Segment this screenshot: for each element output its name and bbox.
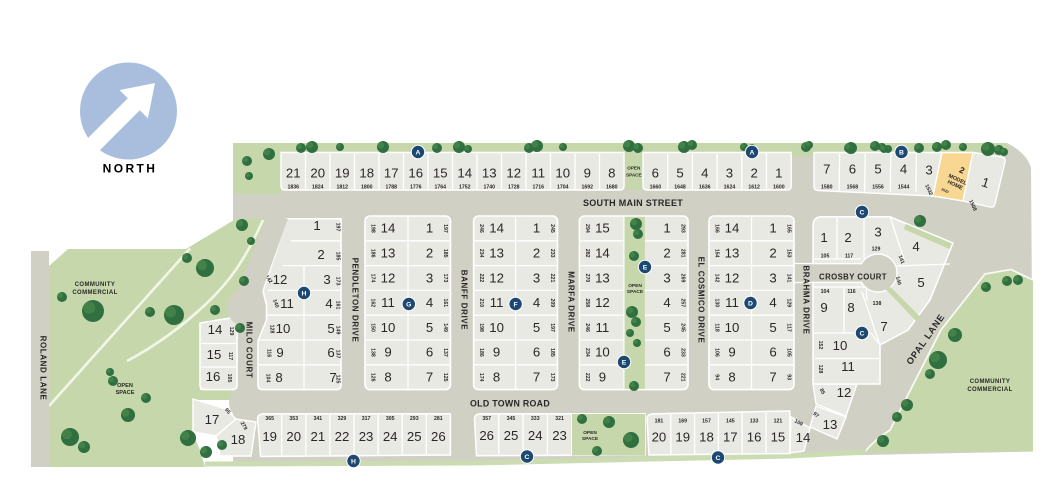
svg-text:154: 154 bbox=[714, 249, 720, 258]
svg-text:6: 6 bbox=[533, 345, 540, 360]
svg-text:C: C bbox=[860, 330, 865, 337]
svg-text:13: 13 bbox=[823, 417, 838, 432]
svg-text:245: 245 bbox=[549, 224, 555, 233]
svg-text:130: 130 bbox=[714, 298, 720, 307]
svg-text:7: 7 bbox=[823, 162, 830, 177]
svg-text:OPEN: OPEN bbox=[628, 283, 642, 289]
svg-text:E: E bbox=[622, 359, 627, 366]
svg-text:6: 6 bbox=[663, 345, 670, 360]
svg-text:18: 18 bbox=[359, 166, 374, 181]
svg-text:2: 2 bbox=[426, 246, 433, 261]
svg-text:11: 11 bbox=[280, 296, 294, 311]
svg-text:C: C bbox=[525, 454, 530, 461]
svg-text:353: 353 bbox=[289, 416, 298, 422]
svg-text:1612: 1612 bbox=[748, 185, 760, 191]
svg-text:9: 9 bbox=[599, 370, 606, 385]
svg-text:26: 26 bbox=[479, 428, 494, 443]
svg-text:1: 1 bbox=[663, 221, 670, 236]
svg-text:166: 166 bbox=[714, 224, 720, 233]
svg-text:7: 7 bbox=[533, 370, 540, 385]
svg-text:222: 222 bbox=[478, 274, 484, 283]
svg-text:2: 2 bbox=[750, 166, 757, 181]
svg-text:210: 210 bbox=[478, 298, 484, 307]
svg-text:9: 9 bbox=[276, 345, 283, 360]
svg-text:10: 10 bbox=[833, 338, 848, 353]
svg-text:157: 157 bbox=[702, 419, 711, 425]
svg-text:8: 8 bbox=[493, 370, 500, 385]
svg-text:20: 20 bbox=[310, 166, 325, 181]
svg-text:1: 1 bbox=[820, 230, 827, 245]
svg-text:234: 234 bbox=[584, 348, 590, 357]
svg-text:21: 21 bbox=[286, 166, 301, 181]
svg-text:14: 14 bbox=[595, 246, 610, 261]
svg-text:9: 9 bbox=[728, 345, 735, 360]
svg-text:SPACE: SPACE bbox=[582, 436, 599, 442]
svg-text:162: 162 bbox=[370, 298, 376, 307]
svg-text:4: 4 bbox=[900, 162, 907, 177]
svg-text:165: 165 bbox=[786, 224, 792, 233]
svg-text:7: 7 bbox=[880, 319, 887, 334]
svg-text:BANFF DRIVE: BANFF DRIVE bbox=[460, 270, 469, 330]
svg-text:222: 222 bbox=[584, 373, 590, 382]
svg-text:198: 198 bbox=[370, 224, 376, 233]
svg-text:9: 9 bbox=[820, 300, 827, 315]
svg-text:258: 258 bbox=[584, 298, 590, 307]
svg-text:153: 153 bbox=[786, 249, 792, 258]
svg-text:6: 6 bbox=[849, 162, 856, 177]
svg-text:149: 149 bbox=[335, 326, 341, 335]
svg-text:12: 12 bbox=[489, 270, 504, 285]
svg-text:281: 281 bbox=[680, 249, 686, 258]
svg-text:125: 125 bbox=[335, 375, 341, 384]
svg-text:8: 8 bbox=[728, 370, 735, 385]
svg-text:9: 9 bbox=[584, 166, 591, 181]
svg-text:EL COSMICO DRIVE: EL COSMICO DRIVE bbox=[697, 257, 706, 344]
svg-text:329: 329 bbox=[338, 416, 347, 422]
svg-text:341: 341 bbox=[314, 416, 323, 422]
svg-text:24: 24 bbox=[383, 429, 398, 444]
svg-text:185: 185 bbox=[549, 348, 555, 357]
svg-text:173: 173 bbox=[549, 373, 555, 382]
svg-text:185: 185 bbox=[442, 249, 448, 258]
svg-text:117: 117 bbox=[227, 352, 233, 360]
svg-text:SPACE: SPACE bbox=[116, 390, 135, 396]
svg-text:17: 17 bbox=[384, 166, 399, 181]
svg-text:17: 17 bbox=[205, 412, 220, 427]
svg-text:15: 15 bbox=[207, 347, 222, 362]
svg-text:14: 14 bbox=[381, 221, 396, 236]
svg-text:161: 161 bbox=[442, 298, 448, 307]
svg-text:1556: 1556 bbox=[872, 185, 884, 191]
svg-text:10: 10 bbox=[381, 320, 396, 335]
svg-text:14: 14 bbox=[796, 430, 811, 445]
svg-text:1: 1 bbox=[426, 221, 433, 236]
svg-text:1836: 1836 bbox=[287, 185, 299, 191]
svg-text:OLD TOWN ROAD: OLD TOWN ROAD bbox=[470, 399, 550, 409]
svg-text:105: 105 bbox=[821, 254, 830, 260]
svg-text:141: 141 bbox=[786, 274, 792, 283]
svg-text:270: 270 bbox=[584, 274, 590, 283]
svg-text:17: 17 bbox=[723, 430, 738, 445]
svg-text:26: 26 bbox=[431, 429, 446, 444]
svg-text:14: 14 bbox=[457, 166, 472, 181]
svg-text:1568: 1568 bbox=[847, 185, 859, 191]
svg-text:7: 7 bbox=[769, 370, 776, 385]
svg-text:246: 246 bbox=[478, 224, 484, 233]
svg-text:1624: 1624 bbox=[724, 185, 736, 191]
svg-text:12: 12 bbox=[595, 295, 610, 310]
svg-text:SPACE: SPACE bbox=[627, 289, 644, 295]
svg-text:129: 129 bbox=[228, 327, 234, 336]
svg-text:145: 145 bbox=[726, 419, 735, 425]
svg-text:128: 128 bbox=[269, 325, 275, 334]
svg-text:21: 21 bbox=[311, 429, 326, 444]
svg-text:24: 24 bbox=[528, 428, 543, 443]
svg-text:14: 14 bbox=[725, 221, 740, 236]
svg-text:SOUTH MAIN STREET: SOUTH MAIN STREET bbox=[583, 198, 683, 208]
svg-text:4: 4 bbox=[663, 295, 670, 310]
svg-text:COMMUNITY: COMMUNITY bbox=[970, 379, 1011, 385]
svg-text:345: 345 bbox=[507, 416, 516, 422]
svg-text:3: 3 bbox=[726, 166, 733, 181]
svg-text:197: 197 bbox=[549, 323, 555, 332]
svg-text:5: 5 bbox=[874, 162, 881, 177]
svg-text:E: E bbox=[643, 264, 648, 271]
svg-text:12: 12 bbox=[837, 385, 852, 400]
svg-text:CROSBY COURT: CROSBY COURT bbox=[819, 273, 887, 282]
svg-text:13: 13 bbox=[381, 246, 396, 261]
svg-text:2: 2 bbox=[533, 246, 540, 261]
svg-text:321: 321 bbox=[555, 416, 564, 422]
svg-text:234: 234 bbox=[478, 249, 484, 258]
svg-text:2: 2 bbox=[769, 246, 776, 261]
svg-text:4: 4 bbox=[769, 295, 776, 310]
svg-text:138: 138 bbox=[370, 348, 376, 357]
svg-text:1728: 1728 bbox=[508, 185, 520, 191]
svg-text:12: 12 bbox=[506, 166, 521, 181]
svg-text:18: 18 bbox=[231, 432, 246, 447]
svg-text:13: 13 bbox=[482, 166, 497, 181]
svg-text:12: 12 bbox=[725, 270, 740, 285]
svg-text:1704: 1704 bbox=[557, 185, 569, 191]
svg-text:H: H bbox=[302, 290, 307, 297]
svg-text:5: 5 bbox=[533, 320, 540, 335]
svg-text:16: 16 bbox=[747, 430, 762, 445]
svg-text:173: 173 bbox=[335, 277, 341, 286]
svg-text:A: A bbox=[416, 149, 421, 156]
svg-text:5: 5 bbox=[327, 321, 334, 336]
svg-text:129: 129 bbox=[786, 298, 792, 307]
svg-text:197: 197 bbox=[442, 224, 448, 233]
svg-text:11: 11 bbox=[841, 359, 855, 374]
svg-text:14: 14 bbox=[208, 322, 223, 337]
svg-text:G: G bbox=[406, 301, 411, 308]
svg-text:117: 117 bbox=[786, 323, 792, 331]
svg-text:11: 11 bbox=[531, 166, 545, 181]
svg-text:6: 6 bbox=[652, 166, 659, 181]
svg-text:19: 19 bbox=[675, 430, 690, 445]
svg-text:2: 2 bbox=[317, 247, 324, 262]
svg-text:293: 293 bbox=[680, 224, 686, 233]
svg-text:150: 150 bbox=[370, 323, 376, 332]
svg-text:COMMUNITY: COMMUNITY bbox=[75, 282, 116, 288]
svg-text:105: 105 bbox=[786, 348, 792, 357]
svg-text:152: 152 bbox=[817, 341, 823, 350]
svg-text:BRAHMA DRIVE: BRAHMA DRIVE bbox=[802, 265, 811, 334]
svg-text:4: 4 bbox=[701, 166, 708, 181]
svg-text:116: 116 bbox=[847, 289, 855, 295]
svg-text:MILO COURT: MILO COURT bbox=[245, 322, 254, 379]
svg-text:11: 11 bbox=[596, 320, 610, 335]
svg-text:12: 12 bbox=[273, 272, 288, 287]
svg-text:1800: 1800 bbox=[361, 185, 373, 191]
svg-text:4: 4 bbox=[325, 296, 332, 311]
svg-text:2: 2 bbox=[663, 246, 670, 261]
svg-text:B: B bbox=[899, 149, 904, 156]
svg-text:19: 19 bbox=[262, 429, 277, 444]
svg-text:5: 5 bbox=[769, 320, 776, 335]
svg-text:8: 8 bbox=[847, 300, 854, 315]
svg-text:5: 5 bbox=[426, 320, 433, 335]
svg-text:125: 125 bbox=[442, 373, 448, 382]
svg-text:118: 118 bbox=[714, 323, 720, 331]
svg-text:20: 20 bbox=[286, 429, 301, 444]
svg-text:3: 3 bbox=[769, 270, 776, 285]
svg-text:245: 245 bbox=[680, 323, 686, 332]
svg-text:333: 333 bbox=[531, 416, 540, 422]
svg-text:ROLAND LANE: ROLAND LANE bbox=[39, 336, 48, 401]
svg-text:106: 106 bbox=[714, 348, 720, 357]
svg-text:F: F bbox=[514, 301, 518, 308]
svg-text:8: 8 bbox=[608, 166, 615, 181]
svg-text:1660: 1660 bbox=[650, 185, 662, 191]
svg-text:105: 105 bbox=[226, 374, 232, 383]
svg-text:129: 129 bbox=[872, 247, 881, 253]
svg-text:H: H bbox=[351, 458, 356, 465]
svg-text:294: 294 bbox=[584, 224, 590, 233]
svg-text:1: 1 bbox=[313, 218, 320, 233]
svg-text:C: C bbox=[860, 209, 865, 216]
svg-text:198: 198 bbox=[478, 323, 484, 332]
svg-text:16: 16 bbox=[206, 369, 221, 384]
svg-text:1: 1 bbox=[533, 221, 540, 236]
svg-text:11: 11 bbox=[381, 295, 395, 310]
svg-text:269: 269 bbox=[680, 274, 686, 283]
svg-text:20: 20 bbox=[652, 430, 667, 445]
svg-text:209: 209 bbox=[549, 298, 555, 307]
svg-text:15: 15 bbox=[433, 166, 448, 181]
svg-text:3: 3 bbox=[925, 163, 932, 178]
svg-text:23: 23 bbox=[552, 428, 567, 443]
svg-text:8: 8 bbox=[275, 370, 282, 385]
svg-text:186: 186 bbox=[478, 348, 484, 357]
svg-text:104: 104 bbox=[265, 374, 271, 383]
svg-text:305: 305 bbox=[386, 416, 395, 422]
svg-text:6: 6 bbox=[426, 345, 433, 360]
svg-text:93: 93 bbox=[786, 374, 792, 380]
svg-text:10: 10 bbox=[489, 320, 504, 335]
svg-text:1692: 1692 bbox=[581, 185, 593, 191]
svg-text:104: 104 bbox=[821, 289, 830, 295]
svg-text:OPEN: OPEN bbox=[583, 430, 597, 436]
svg-text:128: 128 bbox=[817, 365, 823, 374]
svg-text:1544: 1544 bbox=[898, 185, 910, 191]
svg-text:9: 9 bbox=[384, 345, 391, 360]
svg-text:OPEN: OPEN bbox=[117, 383, 133, 389]
svg-text:COMMERCIAL: COMMERCIAL bbox=[72, 290, 117, 296]
svg-text:10: 10 bbox=[595, 345, 610, 360]
svg-text:8: 8 bbox=[384, 370, 391, 385]
svg-text:12: 12 bbox=[381, 270, 396, 285]
svg-text:23: 23 bbox=[359, 429, 374, 444]
svg-text:233: 233 bbox=[680, 348, 686, 357]
svg-text:11: 11 bbox=[490, 295, 504, 310]
svg-text:22: 22 bbox=[335, 429, 350, 444]
svg-text:4: 4 bbox=[912, 239, 919, 254]
svg-text:6: 6 bbox=[327, 345, 334, 360]
svg-text:OPEN: OPEN bbox=[627, 166, 641, 171]
svg-text:3: 3 bbox=[533, 270, 540, 285]
svg-text:PENDLETON DRIVE: PENDLETON DRIVE bbox=[351, 258, 360, 343]
svg-text:181: 181 bbox=[655, 419, 664, 425]
svg-text:3: 3 bbox=[874, 225, 881, 240]
svg-text:4: 4 bbox=[426, 295, 433, 310]
svg-text:1824: 1824 bbox=[312, 185, 324, 191]
svg-text:116: 116 bbox=[266, 349, 272, 357]
svg-text:138: 138 bbox=[873, 301, 882, 307]
svg-text:25: 25 bbox=[407, 429, 422, 444]
svg-text:1: 1 bbox=[769, 221, 776, 236]
svg-text:14: 14 bbox=[489, 221, 504, 236]
svg-text:174: 174 bbox=[478, 373, 484, 382]
svg-text:COMMERCIAL: COMMERCIAL bbox=[967, 387, 1012, 393]
svg-text:257: 257 bbox=[680, 298, 686, 307]
svg-text:5: 5 bbox=[676, 166, 683, 181]
svg-text:365: 365 bbox=[265, 416, 274, 422]
svg-text:293: 293 bbox=[410, 416, 419, 422]
svg-text:1764: 1764 bbox=[434, 185, 446, 191]
svg-text:19: 19 bbox=[335, 166, 350, 181]
svg-text:7: 7 bbox=[663, 370, 670, 385]
svg-text:317: 317 bbox=[362, 416, 371, 422]
svg-text:1752: 1752 bbox=[459, 185, 471, 191]
svg-text:1716: 1716 bbox=[532, 185, 544, 191]
svg-text:13: 13 bbox=[725, 246, 740, 261]
svg-text:149: 149 bbox=[442, 323, 448, 332]
svg-text:94: 94 bbox=[714, 374, 720, 380]
svg-text:16: 16 bbox=[408, 166, 423, 181]
svg-text:MARFA DRIVE: MARFA DRIVE bbox=[567, 271, 576, 332]
svg-text:169: 169 bbox=[678, 419, 687, 425]
svg-text:282: 282 bbox=[584, 249, 590, 258]
svg-text:1740: 1740 bbox=[483, 185, 495, 191]
svg-text:5: 5 bbox=[663, 320, 670, 335]
svg-text:126: 126 bbox=[370, 373, 376, 382]
svg-text:A: A bbox=[750, 149, 755, 156]
svg-text:9: 9 bbox=[493, 345, 500, 360]
svg-text:11: 11 bbox=[725, 295, 739, 310]
svg-text:142: 142 bbox=[714, 274, 720, 283]
svg-text:10: 10 bbox=[725, 320, 740, 335]
svg-text:NORTH: NORTH bbox=[103, 162, 158, 176]
svg-text:3: 3 bbox=[323, 272, 330, 287]
svg-text:357: 357 bbox=[482, 416, 491, 422]
svg-text:121: 121 bbox=[774, 419, 783, 425]
svg-text:15: 15 bbox=[771, 430, 786, 445]
svg-text:10: 10 bbox=[555, 166, 570, 181]
svg-text:18: 18 bbox=[699, 430, 714, 445]
svg-text:137: 137 bbox=[335, 350, 341, 359]
svg-text:221: 221 bbox=[549, 274, 555, 283]
svg-text:1680: 1680 bbox=[606, 185, 618, 191]
svg-text:1648: 1648 bbox=[674, 185, 686, 191]
svg-text:174: 174 bbox=[370, 274, 376, 283]
svg-text:1: 1 bbox=[775, 166, 782, 181]
svg-text:1636: 1636 bbox=[699, 185, 711, 191]
svg-text:246: 246 bbox=[584, 323, 590, 332]
svg-text:173: 173 bbox=[442, 274, 448, 283]
svg-text:1600: 1600 bbox=[773, 185, 785, 191]
svg-text:7: 7 bbox=[426, 370, 433, 385]
svg-text:13: 13 bbox=[489, 246, 504, 261]
svg-text:6: 6 bbox=[769, 345, 776, 360]
svg-text:5: 5 bbox=[917, 275, 924, 290]
svg-text:137: 137 bbox=[442, 348, 448, 357]
svg-text:161: 161 bbox=[335, 301, 341, 310]
svg-text:C: C bbox=[716, 455, 721, 462]
svg-text:221: 221 bbox=[680, 373, 686, 382]
svg-text:1788: 1788 bbox=[385, 185, 397, 191]
svg-text:281: 281 bbox=[434, 416, 443, 422]
svg-text:10: 10 bbox=[276, 321, 291, 336]
svg-text:13: 13 bbox=[595, 270, 610, 285]
svg-text:197: 197 bbox=[335, 223, 341, 232]
svg-text:133: 133 bbox=[750, 419, 759, 425]
svg-text:3: 3 bbox=[426, 270, 433, 285]
svg-text:117: 117 bbox=[845, 254, 853, 260]
svg-text:D: D bbox=[748, 300, 753, 307]
svg-text:4: 4 bbox=[533, 295, 540, 310]
svg-text:1580: 1580 bbox=[821, 185, 833, 191]
svg-text:185: 185 bbox=[335, 252, 341, 261]
svg-text:3: 3 bbox=[663, 270, 670, 285]
svg-text:2: 2 bbox=[844, 230, 851, 245]
svg-text:15: 15 bbox=[595, 221, 610, 236]
svg-text:1776: 1776 bbox=[410, 185, 422, 191]
svg-text:1812: 1812 bbox=[336, 185, 348, 191]
svg-text:233: 233 bbox=[549, 249, 555, 258]
svg-text:25: 25 bbox=[504, 428, 519, 443]
svg-text:186: 186 bbox=[370, 249, 376, 258]
svg-text:SPACE: SPACE bbox=[626, 173, 642, 178]
